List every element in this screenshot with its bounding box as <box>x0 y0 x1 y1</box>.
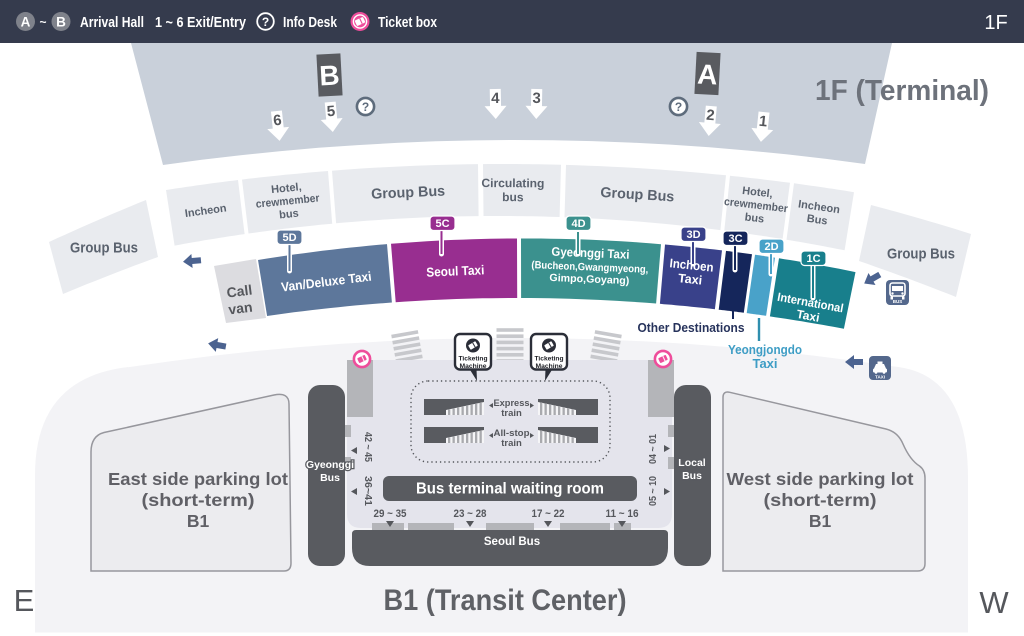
svg-text:Other Destinations: Other Destinations <box>638 320 745 335</box>
svg-text:5D: 5D <box>282 232 296 244</box>
svg-text:bus: bus <box>279 208 300 222</box>
svg-text:B: B <box>319 59 341 91</box>
svg-text:Bus: Bus <box>320 472 340 484</box>
svg-text:1C: 1C <box>806 253 820 265</box>
svg-text:Taxi: Taxi <box>677 271 702 287</box>
svg-text:Yeongjongdo: Yeongjongdo <box>728 342 802 357</box>
svg-text:3C: 3C <box>728 233 742 245</box>
svg-text:Local: Local <box>678 457 706 469</box>
svg-text:Info Desk: Info Desk <box>283 15 338 31</box>
svg-text:5: 5 <box>326 103 336 121</box>
svg-text:17 ~ 22: 17 ~ 22 <box>532 508 565 520</box>
svg-text:Arrival Hall: Arrival Hall <box>80 15 144 31</box>
svg-text:Seoul Taxi: Seoul Taxi <box>426 262 485 279</box>
svg-text:B: B <box>56 15 66 30</box>
svg-text:3: 3 <box>532 90 541 107</box>
svg-text:West side parking lot: West side parking lot <box>727 469 914 489</box>
svg-text:?: ? <box>675 100 682 114</box>
svg-text:Group Bus: Group Bus <box>371 183 446 202</box>
svg-text:B1: B1 <box>809 511 832 531</box>
svg-text:Gyeonggi: Gyeonggi <box>306 459 354 471</box>
svg-text:Ticket box: Ticket box <box>378 15 437 31</box>
svg-text:Ticketing: Ticketing <box>535 356 564 363</box>
svg-text:(short-term): (short-term) <box>142 490 255 510</box>
svg-text:4: 4 <box>491 90 500 107</box>
svg-text:1: 1 <box>758 113 768 131</box>
svg-text:A: A <box>21 15 31 30</box>
svg-text:B1: B1 <box>187 511 210 531</box>
svg-text:?: ? <box>362 100 369 114</box>
svg-text:Group Bus: Group Bus <box>887 246 955 263</box>
svg-text:BUS: BUS <box>893 299 903 304</box>
svg-text:train: train <box>501 438 522 449</box>
svg-text:Call: Call <box>226 282 253 301</box>
svg-text:2: 2 <box>706 107 716 125</box>
svg-text:van: van <box>227 299 253 318</box>
svg-text:1 ~ 6 Exit/Entry: 1 ~ 6 Exit/Entry <box>155 15 246 31</box>
svg-text:5C: 5C <box>435 218 449 230</box>
svg-text:E: E <box>14 583 35 618</box>
svg-text:23 ~ 28: 23 ~ 28 <box>454 508 487 520</box>
svg-text:29 ~ 35: 29 ~ 35 <box>374 508 407 520</box>
svg-text:Circulating: Circulating <box>481 176 544 190</box>
svg-text:Bus terminal waiting room: Bus terminal waiting room <box>416 481 604 498</box>
svg-text:Taxi: Taxi <box>752 356 777 371</box>
svg-text:East side parking lot: East side parking lot <box>108 469 288 489</box>
svg-text:4D: 4D <box>571 218 585 230</box>
svg-text:B1 (Transit Center): B1 (Transit Center) <box>384 584 627 617</box>
svg-text:1F (Terminal): 1F (Terminal) <box>815 75 989 107</box>
svg-text:42 ~ 45: 42 ~ 45 <box>362 432 373 462</box>
svg-text:bus: bus <box>502 190 524 204</box>
svg-text:3D: 3D <box>686 229 700 241</box>
svg-text:Machine: Machine <box>460 363 487 370</box>
svg-text:W: W <box>979 585 1009 620</box>
svg-text:(short-term): (short-term) <box>764 490 877 510</box>
svg-text:train: train <box>501 408 522 419</box>
svg-text:Bus: Bus <box>682 470 702 482</box>
svg-text:36~41: 36~41 <box>362 476 373 506</box>
svg-text:Machine: Machine <box>536 363 563 370</box>
svg-text:Seoul Bus: Seoul Bus <box>484 536 540 548</box>
svg-text:?: ? <box>262 15 269 29</box>
svg-text:05 ~ 10: 05 ~ 10 <box>648 476 659 506</box>
svg-text:A: A <box>697 58 719 90</box>
svg-text:2D: 2D <box>764 241 778 253</box>
svg-text:bus: bus <box>744 211 765 225</box>
svg-text:11 ~ 16: 11 ~ 16 <box>606 508 639 520</box>
svg-text:TAXI: TAXI <box>875 375 885 380</box>
svg-text:1F: 1F <box>984 12 1007 34</box>
svg-text:Ticketing: Ticketing <box>459 356 488 363</box>
svg-text:6: 6 <box>272 112 282 130</box>
svg-text:04 ~ 01: 04 ~ 01 <box>648 434 659 464</box>
svg-text:Group Bus: Group Bus <box>70 240 138 257</box>
svg-text:~: ~ <box>39 15 46 29</box>
